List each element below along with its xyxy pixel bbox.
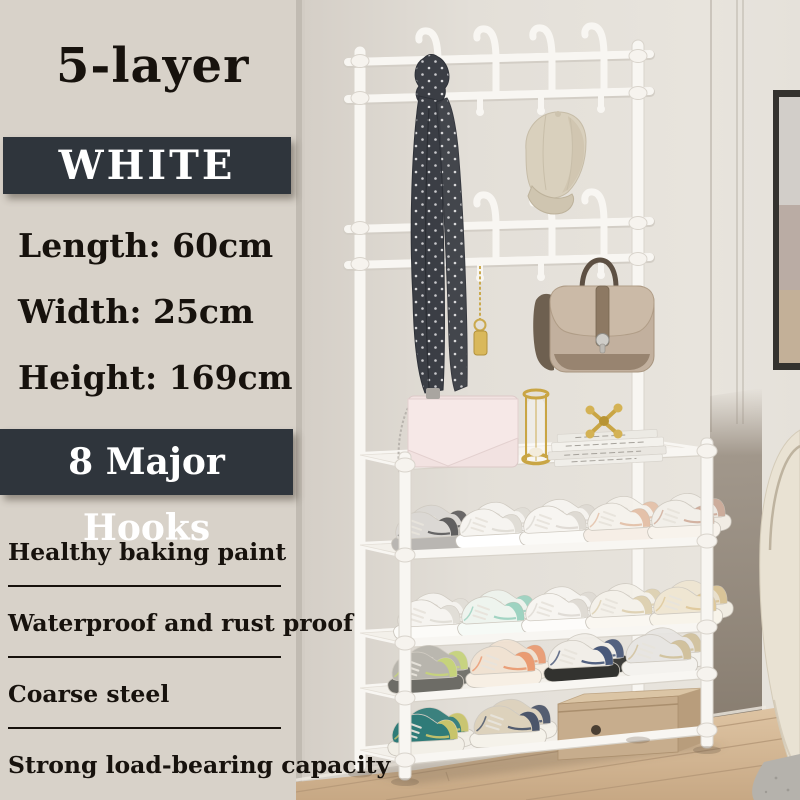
rack-rear-left-pole — [354, 46, 366, 772]
feature-item: Waterproof and rust proof — [8, 587, 281, 658]
color-badge: WHITE — [3, 137, 291, 194]
feature-item: Strong load-bearing capacity — [8, 729, 281, 798]
gold-hourglass — [523, 390, 549, 464]
dimension-length: Length: 60cm — [18, 213, 293, 279]
wall-corner-edge — [296, 0, 302, 800]
feature-item: Coarse steel — [8, 658, 281, 729]
rack-front-left-leg — [399, 452, 411, 780]
product-image: 5-layer WHITE Length: 60cm Width: 25cm H… — [0, 0, 800, 800]
info-panel: 5-layer WHITE Length: 60cm Width: 25cm H… — [0, 0, 296, 800]
picture-frame — [773, 90, 800, 370]
cardboard-shoe-box — [558, 688, 704, 760]
product-photo — [296, 0, 800, 800]
product-title: 5-layer — [56, 38, 249, 94]
hooks-badge: 8 Major Hooks — [0, 429, 293, 495]
book-stack — [547, 429, 667, 467]
rack-front-right-leg — [701, 438, 713, 748]
dimension-height: Height: 169cm — [18, 345, 293, 411]
feature-item: Healthy baking paint — [8, 516, 281, 587]
dimensions-list: Length: 60cm Width: 25cm Height: 169cm — [18, 213, 293, 411]
features-list: Healthy baking paint Waterproof and rust… — [8, 516, 281, 798]
dimension-width: Width: 25cm — [18, 279, 293, 345]
